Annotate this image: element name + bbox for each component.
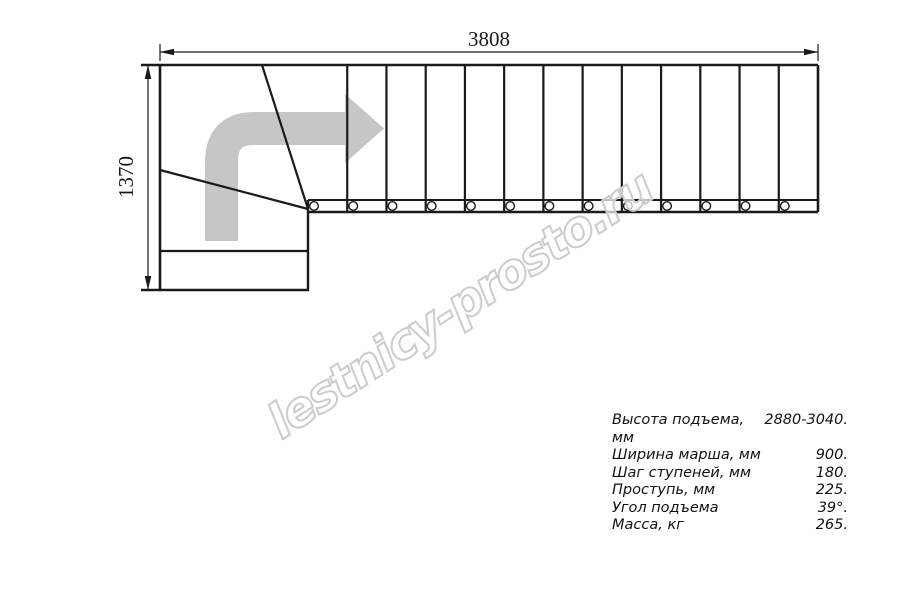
technical-drawing-canvas: 3808 1370 lestnicy-prosto.ru Высота подъ… xyxy=(0,0,900,600)
width-dimension-label: 1370 xyxy=(114,156,138,198)
spec-row-height: Высота подъема, мм 2880-3040. xyxy=(612,412,848,447)
spec-value: 2880-3040. xyxy=(764,412,848,447)
spec-value: 900. xyxy=(816,447,848,465)
spec-label: Шаг ступеней, мм xyxy=(612,465,751,483)
spec-label: Угол подъема xyxy=(612,500,719,518)
spec-row-step-rise: Шаг ступеней, мм 180. xyxy=(612,465,848,483)
spec-row-angle: Угол подъема 39°. xyxy=(612,500,848,518)
spec-value: 180. xyxy=(816,465,848,483)
spec-value: 265. xyxy=(816,517,848,535)
length-dimension-label: 3808 xyxy=(468,27,510,51)
spec-row-flight-width: Ширина марша, мм 900. xyxy=(612,447,848,465)
spec-row-mass: Масса, кг 265. xyxy=(612,517,848,535)
spec-value: 39°. xyxy=(818,500,848,518)
tread-lines xyxy=(347,65,779,212)
direction-arrow-icon xyxy=(222,94,385,241)
length-dimension: 3808 xyxy=(160,27,818,61)
baluster-circles xyxy=(310,202,789,211)
stair-outline xyxy=(141,64,818,290)
spec-label: Ширина марша, мм xyxy=(612,447,761,465)
spec-label: Высота подъема, мм xyxy=(612,412,764,447)
spec-value: 225. xyxy=(816,482,848,500)
width-dimension: 1370 xyxy=(114,65,151,290)
spec-label: Проступь, мм xyxy=(612,482,715,500)
spec-table: Высота подъема, мм 2880-3040. Ширина мар… xyxy=(612,412,848,535)
spec-row-tread-depth: Проступь, мм 225. xyxy=(612,482,848,500)
spec-label: Масса, кг xyxy=(612,517,684,535)
